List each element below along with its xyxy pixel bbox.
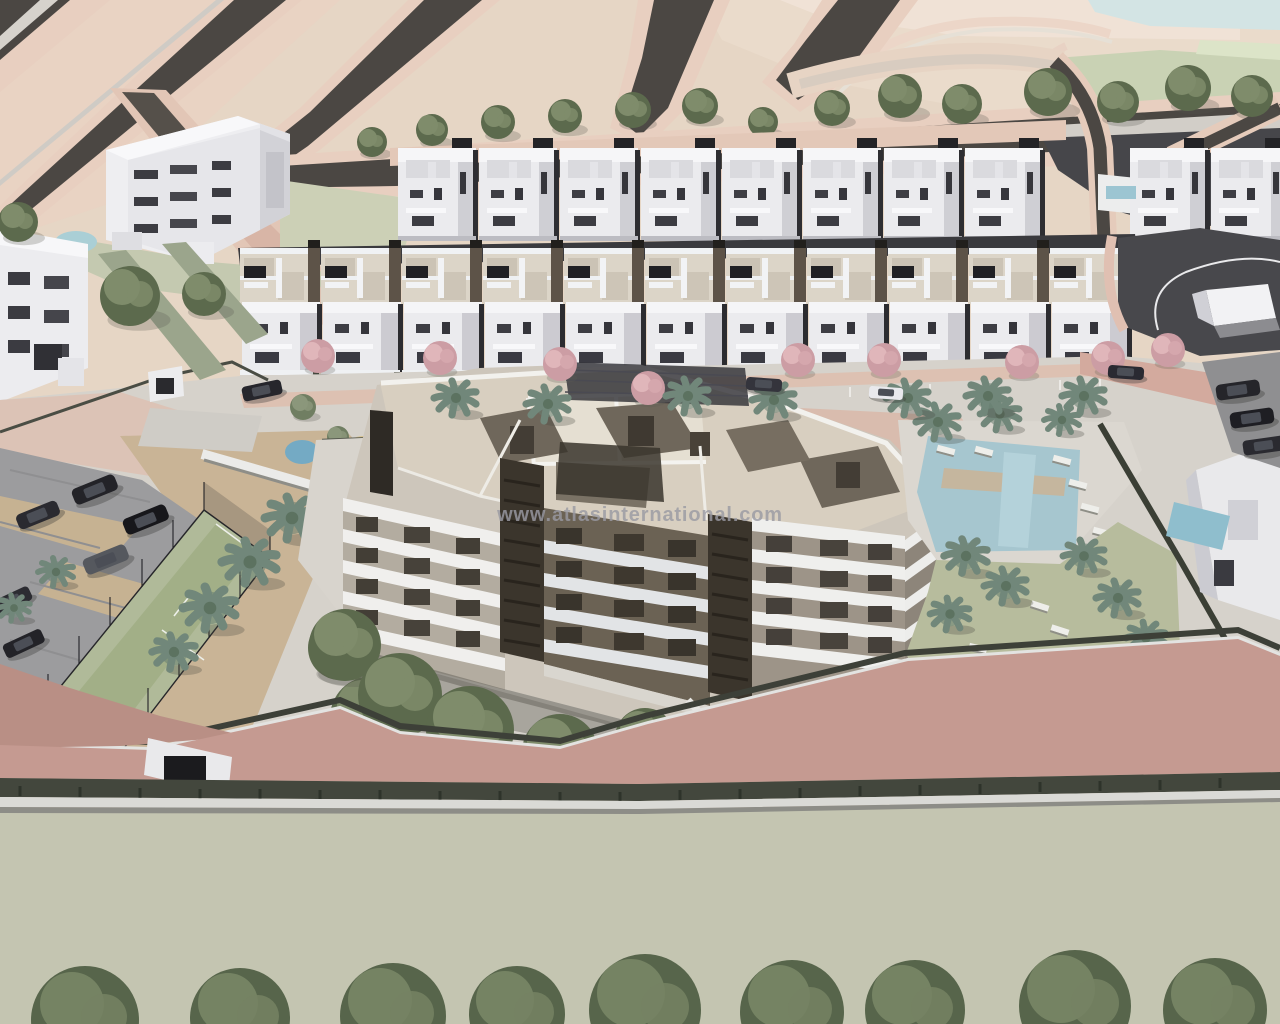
svg-text:www.atlasinternational.com: www.atlasinternational.com	[496, 504, 783, 526]
